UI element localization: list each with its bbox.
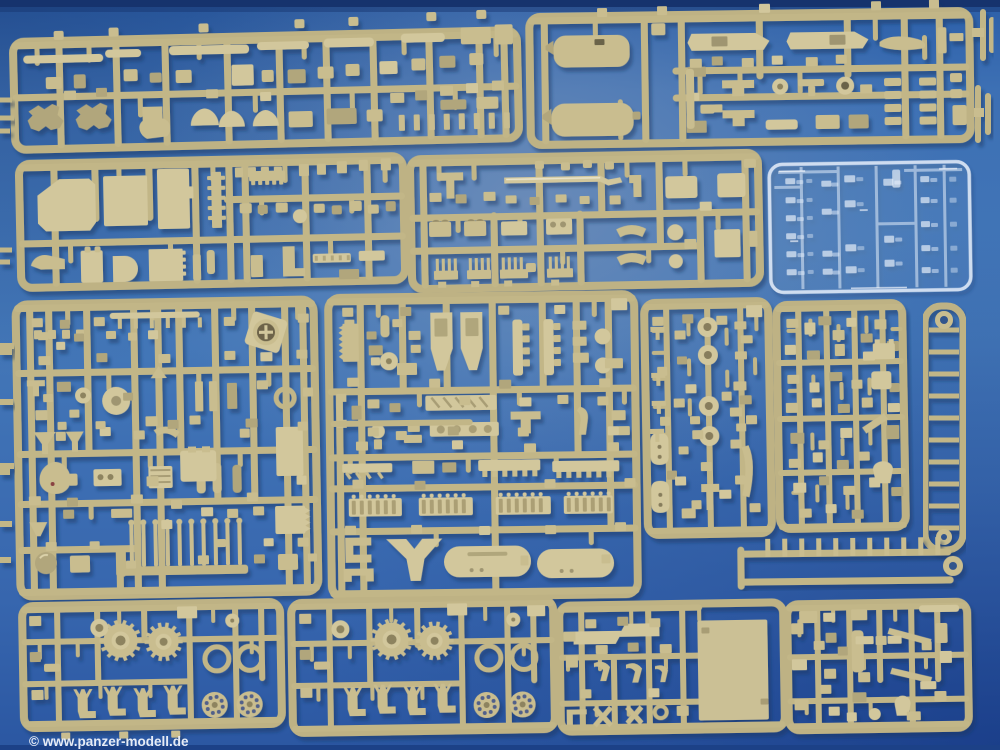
svg-text:© www.panzer-modell.de: © www.panzer-modell.de [29,734,189,749]
